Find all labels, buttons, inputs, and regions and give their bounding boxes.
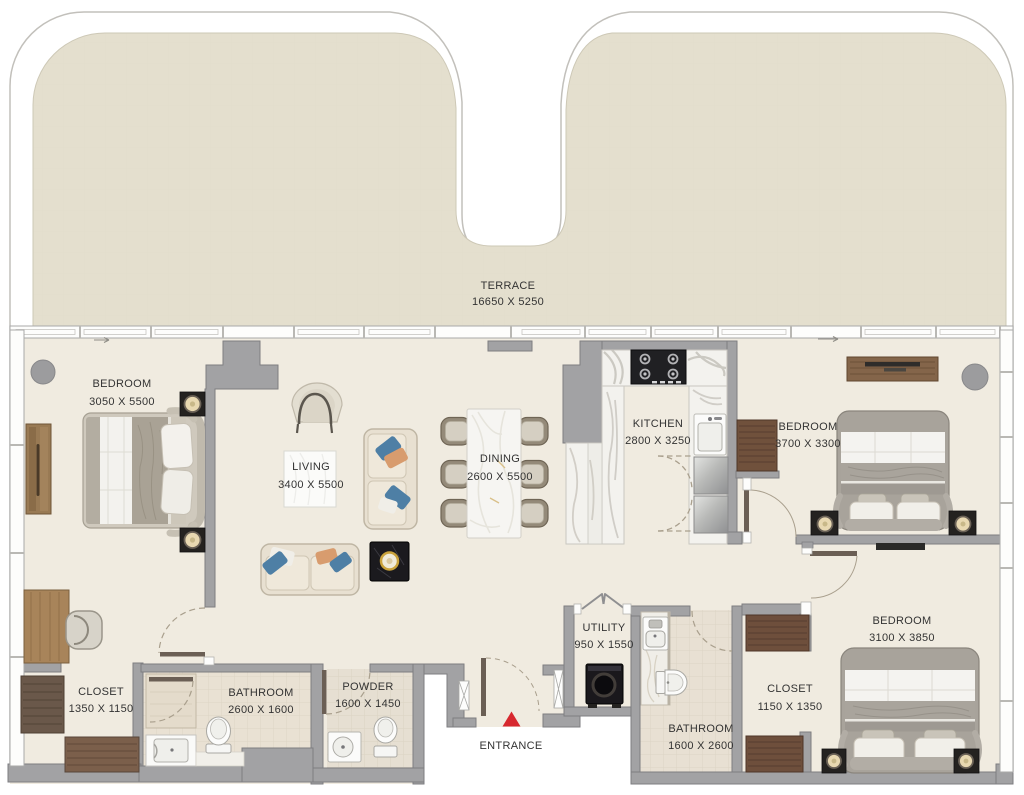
svg-text:1600 X 2600: 1600 X 2600 <box>668 740 734 752</box>
svg-text:TERRACE: TERRACE <box>481 280 536 292</box>
svg-text:LIVING: LIVING <box>292 461 330 473</box>
svg-text:2600 X 5500: 2600 X 5500 <box>467 471 533 483</box>
svg-text:3700 X 3300: 3700 X 3300 <box>775 438 841 450</box>
svg-text:3400 X 5500: 3400 X 5500 <box>278 479 344 491</box>
svg-text:BATHROOM: BATHROOM <box>668 723 733 735</box>
svg-text:1150 X 1350: 1150 X 1350 <box>758 701 823 713</box>
svg-text:1350 X 1150: 1350 X 1150 <box>69 703 134 715</box>
svg-text:2600 X 1600: 2600 X 1600 <box>228 704 294 716</box>
svg-text:3050 X 5500: 3050 X 5500 <box>89 396 155 408</box>
svg-text:BATHROOM: BATHROOM <box>228 687 293 699</box>
svg-text:CLOSET: CLOSET <box>78 686 124 698</box>
svg-text:BEDROOM: BEDROOM <box>873 615 932 627</box>
svg-text:3100 X 3850: 3100 X 3850 <box>869 632 935 644</box>
svg-text:POWDER: POWDER <box>342 681 393 693</box>
svg-text:KITCHEN: KITCHEN <box>633 418 683 430</box>
svg-text:CLOSET: CLOSET <box>767 683 813 695</box>
svg-text:16650 X 5250: 16650 X 5250 <box>472 296 544 308</box>
svg-text:BEDROOM: BEDROOM <box>93 378 152 390</box>
svg-text:1600 X 1450: 1600 X 1450 <box>335 698 401 710</box>
svg-text:DINING: DINING <box>480 453 520 465</box>
svg-text:950 X 1550: 950 X 1550 <box>574 639 633 651</box>
svg-text:ENTRANCE: ENTRANCE <box>480 740 543 752</box>
svg-text:2800 X 3250: 2800 X 3250 <box>625 435 691 447</box>
svg-text:BEDROOM: BEDROOM <box>779 421 838 433</box>
svg-text:UTILITY: UTILITY <box>582 622 625 634</box>
